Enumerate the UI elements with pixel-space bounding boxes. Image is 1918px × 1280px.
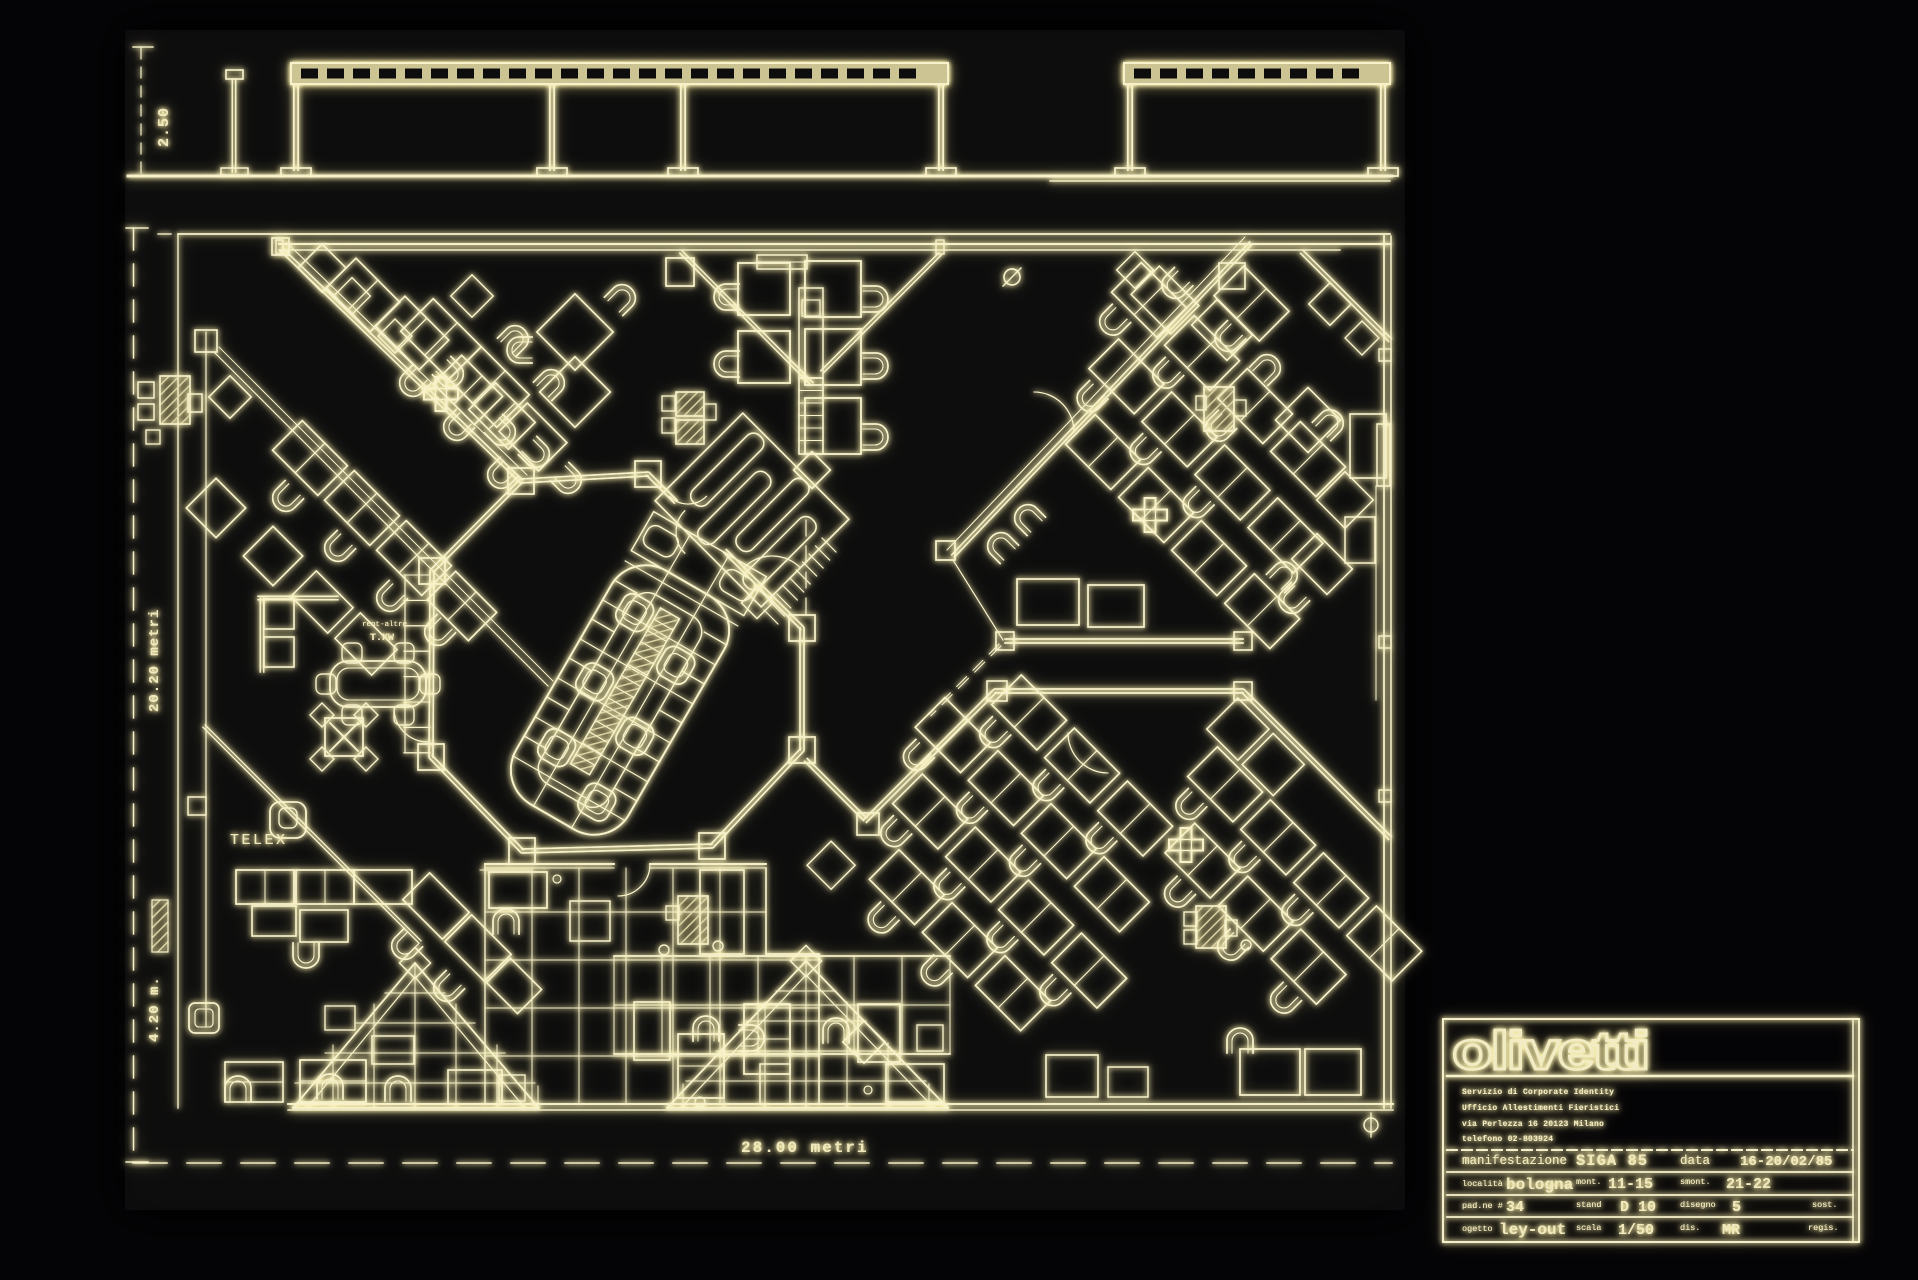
svg-text:2.50: 2.50 bbox=[156, 107, 173, 147]
svg-text:scala: scala bbox=[1576, 1223, 1602, 1233]
svg-text:regis.: regis. bbox=[1808, 1223, 1839, 1233]
svg-text:mont.: mont. bbox=[1576, 1177, 1602, 1187]
svg-text:11-15: 11-15 bbox=[1608, 1176, 1653, 1193]
svg-text:pad.ne #: pad.ne # bbox=[1462, 1201, 1503, 1211]
svg-text:Ufficio Allestimenti Fieristic: Ufficio Allestimenti Fieristici bbox=[1462, 1105, 1619, 1113]
svg-text:smont.: smont. bbox=[1680, 1177, 1711, 1187]
svg-text:manifestazione: manifestazione bbox=[1462, 1154, 1567, 1168]
svg-text:disegno: disegno bbox=[1680, 1200, 1716, 1210]
svg-text:28.00 metri: 28.00 metri bbox=[741, 1139, 869, 1157]
svg-text:20.20 metri: 20.20 metri bbox=[147, 609, 163, 712]
svg-text:4.20 m.: 4.20 m. bbox=[147, 976, 163, 1042]
svg-text:rent-altre: rent-altre bbox=[362, 621, 407, 629]
svg-text:ley-out: ley-out bbox=[1499, 1221, 1566, 1239]
svg-text:dis.: dis. bbox=[1680, 1223, 1700, 1233]
svg-text:D 10: D 10 bbox=[1620, 1199, 1656, 1216]
svg-text:sost.: sost. bbox=[1812, 1200, 1838, 1210]
svg-text:bologna: bologna bbox=[1506, 1176, 1574, 1194]
svg-text:località: località bbox=[1462, 1179, 1503, 1189]
svg-text:5: 5 bbox=[1732, 1199, 1741, 1216]
svg-text:stand: stand bbox=[1576, 1200, 1602, 1210]
svg-text:21-22: 21-22 bbox=[1726, 1176, 1771, 1193]
svg-text:Servizio di Corporate Identity: Servizio di Corporate Identity bbox=[1462, 1089, 1614, 1097]
svg-text:via Perlezza 16 20123 Milano: via Perlezza 16 20123 Milano bbox=[1462, 1121, 1604, 1129]
svg-text:TELEX: TELEX bbox=[230, 832, 288, 849]
svg-text:data: data bbox=[1680, 1154, 1711, 1168]
svg-text:MR: MR bbox=[1722, 1222, 1740, 1239]
svg-text:olivetti: olivetti bbox=[1452, 1021, 1648, 1081]
svg-text:16-20/02/85: 16-20/02/85 bbox=[1740, 1154, 1832, 1170]
svg-text:ogetto: ogetto bbox=[1462, 1224, 1493, 1234]
svg-text:SIGA 85: SIGA 85 bbox=[1576, 1152, 1648, 1170]
svg-text:T.KW: T.KW bbox=[370, 633, 394, 644]
svg-text:telefono 02-803924: telefono 02-803924 bbox=[1462, 1136, 1553, 1144]
svg-text:34: 34 bbox=[1506, 1199, 1524, 1216]
svg-text:1/50: 1/50 bbox=[1618, 1222, 1654, 1239]
